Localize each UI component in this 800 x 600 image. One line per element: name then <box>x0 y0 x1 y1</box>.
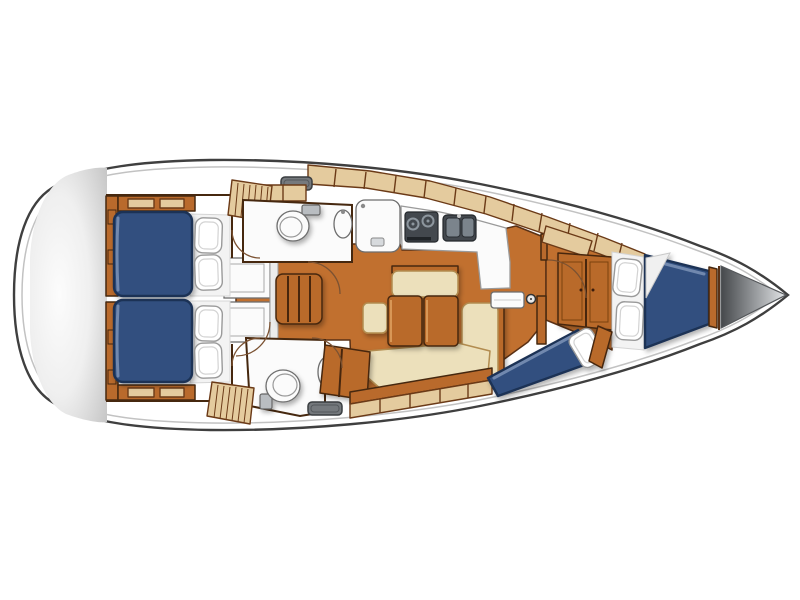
shower-stall <box>356 200 400 252</box>
double-berth-mattress <box>114 300 192 382</box>
pillow <box>194 306 222 342</box>
pillow <box>615 301 644 340</box>
head-port <box>243 200 352 262</box>
stern-lazarette <box>30 168 107 423</box>
deck-hatch <box>308 402 342 415</box>
pillow <box>612 258 643 298</box>
double-sink <box>443 214 476 241</box>
folding-table-leaf <box>388 296 422 346</box>
shelf-locker <box>160 199 184 208</box>
mattress-highlight <box>117 306 118 376</box>
shelf-locker <box>128 199 154 208</box>
hanging-locker-louvered <box>207 382 254 424</box>
pillow <box>194 218 222 254</box>
shower-head <box>361 204 365 208</box>
shower-drain <box>371 238 384 246</box>
washbasin <box>334 210 352 238</box>
footboard-strip <box>709 267 717 328</box>
shelf-locker <box>160 388 184 397</box>
double-berth-mattress <box>114 212 192 296</box>
dresser-handle <box>592 289 595 292</box>
stern-shade <box>30 168 107 423</box>
settee-cushion-top <box>392 271 458 297</box>
boat-floorplan-image <box>0 0 800 600</box>
folding-table-leaf <box>424 296 458 346</box>
mattress-highlight <box>117 218 118 290</box>
shelf-locker <box>128 388 154 397</box>
floorplan-svg <box>0 0 800 600</box>
mast-post <box>527 295 536 304</box>
pillow <box>194 343 222 379</box>
bulkhead-lower <box>537 296 546 344</box>
settee-cushion-left <box>363 303 387 333</box>
pillow <box>194 255 222 291</box>
dresser-handle <box>580 289 583 292</box>
stove-two-burner <box>405 212 438 242</box>
